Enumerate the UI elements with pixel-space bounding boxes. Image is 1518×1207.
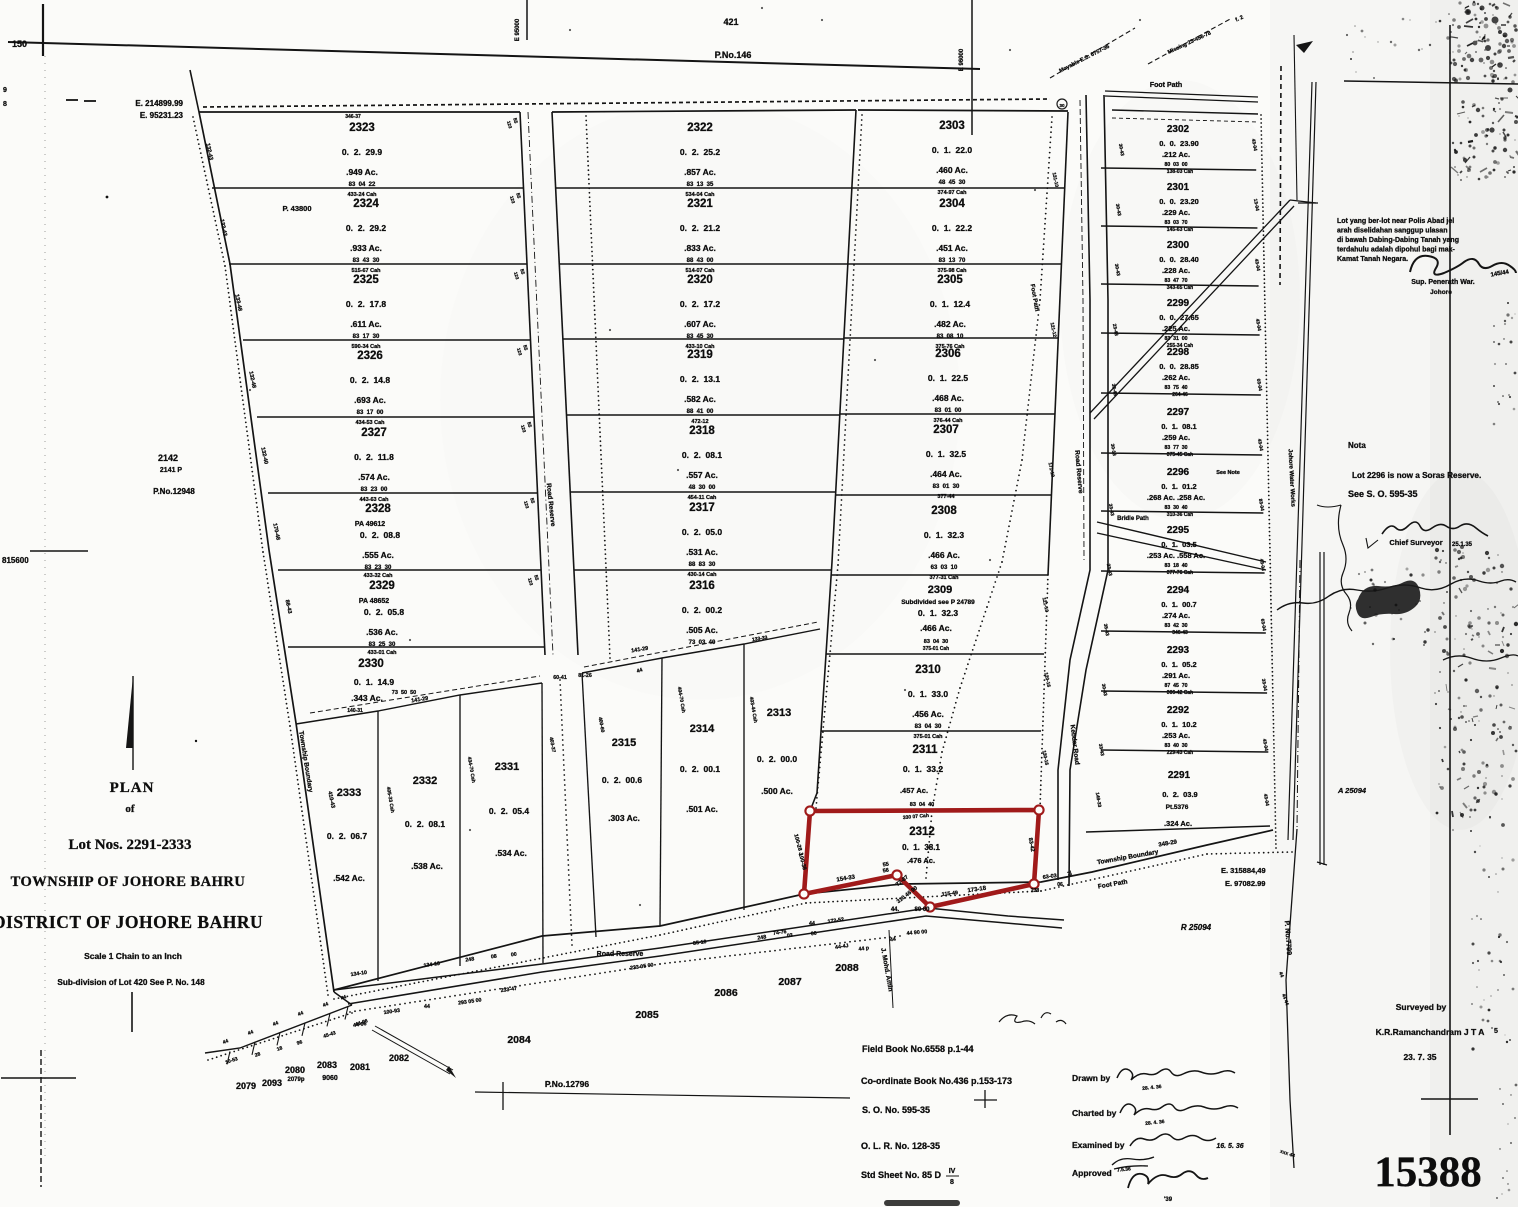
- svg-text:2093: 2093: [262, 1078, 282, 1088]
- svg-text:44: 44: [890, 937, 897, 944]
- svg-text:2296: 2296: [1167, 467, 1190, 478]
- svg-text:.611 Ac.: .611 Ac.: [350, 319, 381, 329]
- svg-text:0. 2. 08.1: 0. 2. 08.1: [405, 819, 445, 829]
- svg-text:2085: 2085: [635, 1009, 659, 1021]
- svg-text:.457 Ac.: .457 Ac.: [900, 786, 928, 795]
- svg-text:0. 0. 28.40: 0. 0. 28.40: [1159, 255, 1199, 264]
- svg-text:87 45 70: 87 45 70: [1164, 683, 1187, 689]
- svg-text:0. 1. 22.2: 0. 1. 22.2: [932, 223, 972, 233]
- svg-text:83 04 30: 83 04 30: [915, 724, 942, 730]
- svg-text:.557 Ac.: .557 Ac.: [686, 470, 718, 480]
- svg-text:83 13 70: 83 13 70: [939, 258, 966, 264]
- svg-text:2303: 2303: [939, 120, 965, 132]
- svg-text:83 04 30: 83 04 30: [924, 639, 948, 645]
- svg-text:0. 1. 22.5: 0. 1. 22.5: [928, 373, 968, 383]
- svg-text:83 04 40: 83 04 40: [910, 802, 934, 808]
- svg-text:P. 43800: P. 43800: [282, 204, 311, 213]
- svg-text:2318: 2318: [689, 425, 715, 437]
- svg-text:48 45 30: 48 45 30: [939, 180, 966, 186]
- svg-text:Pt.5376: Pt.5376: [1166, 804, 1189, 811]
- svg-text:83 42 30: 83 42 30: [1164, 623, 1187, 629]
- svg-text:44.: 44.: [891, 907, 900, 913]
- svg-text:145-63 Cah: 145-63 Cah: [1167, 227, 1193, 233]
- svg-text:P.No.146: P.No.146: [715, 50, 752, 60]
- svg-text:83 45 30: 83 45 30: [687, 334, 714, 340]
- svg-text:2309: 2309: [928, 584, 952, 596]
- svg-text:03: 03: [787, 933, 794, 940]
- svg-text:Examined by: Examined by: [1072, 1140, 1125, 1150]
- svg-text:2141 P: 2141 P: [160, 467, 183, 474]
- svg-text:0. 1. 12.4: 0. 1. 12.4: [930, 299, 970, 309]
- svg-text:2302: 2302: [1167, 124, 1190, 135]
- svg-text:.505 Ac.: .505 Ac.: [686, 625, 718, 635]
- svg-text:.291 Ac.: .291 Ac.: [1162, 671, 1190, 680]
- svg-text:229-43 Cah: 229-43 Cah: [1167, 750, 1193, 756]
- svg-text:2088: 2088: [835, 962, 859, 974]
- svg-text:.303 Ac.: .303 Ac.: [608, 813, 640, 823]
- svg-text:48 30 00: 48 30 00: [689, 485, 716, 491]
- svg-text:E 96000: E 96000: [959, 48, 965, 71]
- svg-text:2321: 2321: [687, 198, 713, 210]
- svg-text:83 23 30: 83 23 30: [365, 565, 392, 571]
- svg-text:83 43 30: 83 43 30: [353, 258, 380, 264]
- svg-text:Scale 1 Chain to an Inch: Scale 1 Chain to an Inch: [84, 951, 182, 961]
- svg-text:81-26: 81-26: [578, 673, 592, 679]
- svg-text:83 40 30: 83 40 30: [1164, 743, 1187, 749]
- svg-text:0. 1. 32.3: 0. 1. 32.3: [918, 608, 958, 618]
- svg-text:88 41 00: 88 41 00: [687, 409, 714, 415]
- svg-text:80 03 00: 80 03 00: [1164, 162, 1187, 168]
- svg-text:0. 0. 28.85: 0. 0. 28.85: [1159, 362, 1199, 371]
- svg-text:0. 2. 25.2: 0. 2. 25.2: [680, 147, 720, 157]
- svg-text:2304: 2304: [939, 198, 965, 210]
- svg-text:454-11 Cah: 454-11 Cah: [688, 495, 717, 501]
- svg-text:di bawah Dabing-Dabing Tanah y: di bawah Dabing-Dabing Tanah yang: [1337, 237, 1459, 244]
- svg-text:2087: 2087: [778, 976, 802, 988]
- svg-text:2331: 2331: [495, 761, 519, 773]
- svg-text:2305: 2305: [937, 274, 963, 286]
- svg-text:Foot Path: Foot Path: [1150, 82, 1182, 89]
- svg-text:2320: 2320: [687, 274, 713, 286]
- svg-text:9: 9: [3, 87, 7, 94]
- svg-text:.229 Ac.: .229 Ac.: [1162, 208, 1190, 217]
- svg-text:83 25 30: 83 25 30: [369, 642, 396, 648]
- svg-text:00: 00: [511, 952, 518, 959]
- svg-text:15388: 15388: [1374, 1149, 1482, 1196]
- svg-text:83 75 40: 83 75 40: [1164, 385, 1187, 391]
- svg-text:88 83 30: 88 83 30: [689, 562, 716, 568]
- svg-text:E 95000: E 95000: [515, 18, 521, 41]
- svg-text:248: 248: [465, 956, 475, 963]
- svg-text:63 03 10: 63 03 10: [931, 565, 958, 571]
- svg-text:2311: 2311: [913, 744, 939, 756]
- svg-text:.253 Ac. .558 Ac.: .253 Ac. .558 Ac.: [1147, 551, 1205, 560]
- svg-text:.274 Ac.: .274 Ac.: [1162, 611, 1190, 620]
- svg-text:310-36 Cah: 310-36 Cah: [1167, 512, 1193, 518]
- svg-text:2083: 2083: [317, 1060, 337, 1070]
- svg-text:Road Reserve: Road Reserve: [597, 951, 644, 958]
- svg-text:83 04 22: 83 04 22: [349, 182, 376, 188]
- svg-text:0. 2. 29.9: 0. 2. 29.9: [342, 147, 382, 157]
- svg-text:2325: 2325: [353, 274, 379, 286]
- svg-text:44: 44: [424, 1004, 430, 1010]
- svg-text:See Note: See Note: [1216, 470, 1240, 476]
- svg-text:83 18 40: 83 18 40: [1164, 563, 1187, 569]
- svg-text:PA 48652: PA 48652: [359, 598, 389, 605]
- svg-text:433-32 Cah: 433-32 Cah: [363, 573, 393, 579]
- svg-text:2308: 2308: [931, 505, 957, 517]
- svg-text:2291: 2291: [1168, 770, 1191, 781]
- svg-text:0. 2. 00.2: 0. 2. 00.2: [682, 605, 722, 615]
- svg-text:83 08 10: 83 08 10: [937, 334, 964, 340]
- svg-text:264-46: 264-46: [1172, 392, 1188, 398]
- svg-text:375-45 Cah: 375-45 Cah: [1167, 452, 1193, 458]
- svg-text:.582 Ac.: .582 Ac.: [684, 394, 716, 404]
- svg-text:248: 248: [757, 934, 767, 941]
- svg-text:375-01 Cah: 375-01 Cah: [913, 734, 943, 740]
- svg-text:0. 2. 11.8: 0. 2. 11.8: [354, 452, 394, 462]
- svg-text:Co-ordinate Book No.436 p.153-: Co-ordinate Book No.436 p.153-173: [861, 1076, 1012, 1086]
- svg-text:.259 Ac.: .259 Ac.: [1162, 433, 1190, 442]
- svg-text:0. 1. 38.1: 0. 1. 38.1: [902, 843, 940, 852]
- svg-text:.228 Ac.: .228 Ac.: [1162, 266, 1190, 275]
- svg-text:Subdivided see P 24789: Subdivided see P 24789: [901, 599, 975, 606]
- svg-text:0. 1. 33.0: 0. 1. 33.0: [908, 689, 948, 699]
- svg-text:83 17 30: 83 17 30: [353, 334, 380, 340]
- svg-text:Approved: Approved: [1072, 1168, 1112, 1178]
- svg-text:0. 1. 32.3: 0. 1. 32.3: [924, 530, 964, 540]
- svg-text:Sup. Penerath War.: Sup. Penerath War.: [1411, 279, 1475, 286]
- svg-text:2081: 2081: [350, 1062, 370, 1072]
- svg-text:of: of: [125, 803, 135, 815]
- svg-text:60-41: 60-41: [553, 675, 567, 681]
- svg-text:2142: 2142: [158, 453, 178, 463]
- svg-text:0. 2. 14.8: 0. 2. 14.8: [350, 375, 390, 385]
- svg-text:2079p: 2079p: [287, 1077, 304, 1083]
- svg-text:0. 2. 13.1: 0. 2. 13.1: [680, 374, 720, 384]
- svg-text:'39: '39: [1164, 1197, 1173, 1203]
- svg-text:.456 Ac.: .456 Ac.: [912, 709, 944, 719]
- svg-text:2298: 2298: [1167, 347, 1190, 358]
- svg-text:K.R.Ramanchandram J T A: K.R.Ramanchandram J T A: [1376, 1027, 1485, 1037]
- svg-text:83 03 70: 83 03 70: [1164, 220, 1187, 226]
- svg-text:83 47 70: 83 47 70: [1164, 278, 1187, 284]
- svg-text:S. O. No. 595-35: S. O. No. 595-35: [862, 1105, 930, 1115]
- svg-text:P.No.12948: P.No.12948: [153, 487, 195, 496]
- svg-text:9060: 9060: [322, 1075, 338, 1082]
- svg-text:88 43 00: 88 43 00: [687, 258, 714, 264]
- svg-text:140-31: 140-31: [347, 708, 363, 714]
- svg-text:2295: 2295: [1167, 525, 1190, 536]
- svg-text:Nota: Nota: [1348, 441, 1366, 450]
- svg-text:83 13 35: 83 13 35: [687, 182, 714, 188]
- svg-text:30: 30: [1059, 103, 1065, 108]
- svg-text:Field Book No.6558 p.1-44: Field Book No.6558 p.1-44: [862, 1044, 974, 1054]
- svg-text:434-53 Cah: 434-53 Cah: [355, 420, 385, 426]
- svg-text:2301: 2301: [1167, 182, 1190, 193]
- svg-text:.693 Ac.: .693 Ac.: [354, 395, 386, 405]
- svg-text:Kamat Tanah Negara.: Kamat Tanah Negara.: [1337, 256, 1408, 263]
- svg-text:O. L. R. No. 128-35: O. L. R. No. 128-35: [861, 1141, 940, 1151]
- svg-text:56: 56: [882, 868, 889, 875]
- svg-text:2082: 2082: [389, 1053, 409, 1063]
- svg-text:.531 Ac.: .531 Ac.: [686, 547, 718, 557]
- svg-text:8: 8: [3, 101, 7, 108]
- svg-text:377-44: 377-44: [937, 494, 955, 500]
- svg-text:.555 Ac.: .555 Ac.: [362, 550, 394, 560]
- svg-text:2294: 2294: [1167, 585, 1190, 596]
- svg-text:Lot yang ber-lot near Polis Ab: Lot yang ber-lot near Polis Abad jel: [1337, 218, 1454, 225]
- svg-text:R 25094: R 25094: [1181, 923, 1212, 932]
- svg-text:.262 Ac.: .262 Ac.: [1162, 373, 1190, 382]
- svg-text:150: 150: [12, 39, 27, 49]
- svg-text:Chief Surveyor: Chief Surveyor: [1389, 538, 1442, 547]
- svg-text:430-14 Cah: 430-14 Cah: [687, 572, 717, 578]
- svg-text:2292: 2292: [1167, 705, 1190, 716]
- svg-text:377-76 Cah: 377-76 Cah: [1167, 570, 1193, 576]
- svg-text:2300: 2300: [1167, 240, 1190, 251]
- svg-text:Drawn by: Drawn by: [1072, 1073, 1111, 1083]
- svg-text:PA 49612: PA 49612: [355, 521, 385, 528]
- svg-text:0. 1. 03.5: 0. 1. 03.5: [1161, 540, 1196, 549]
- svg-text:0. 2. 08.1: 0. 2. 08.1: [682, 450, 722, 460]
- svg-text:Std Sheet No. 85 D: Std Sheet No. 85 D: [861, 1170, 942, 1180]
- svg-text:2323: 2323: [349, 122, 375, 134]
- svg-text:2329: 2329: [369, 580, 395, 592]
- svg-text:0. 0. 27.65: 0. 0. 27.65: [1159, 313, 1199, 322]
- svg-text:2319: 2319: [687, 349, 713, 361]
- svg-text:.542 Ac.: .542 Ac.: [333, 873, 365, 883]
- svg-text:See S. O. 595-35: See S. O. 595-35: [1348, 489, 1418, 499]
- svg-text:0. 2. 03.9: 0. 2. 03.9: [1162, 790, 1197, 799]
- svg-text:E. 315884,49: E. 315884,49: [1221, 866, 1266, 875]
- svg-text:238: 238: [1031, 888, 1040, 894]
- svg-text:Lot Nos. 2291-2333: Lot Nos. 2291-2333: [69, 837, 192, 853]
- svg-text:2328: 2328: [365, 503, 391, 515]
- svg-text:Johore: Johore: [1430, 289, 1452, 296]
- svg-text:PLAN: PLAN: [110, 780, 155, 796]
- svg-text:2293: 2293: [1167, 645, 1190, 656]
- svg-text:.466 Ac.: .466 Ac.: [928, 550, 960, 560]
- svg-text:A 25094: A 25094: [1337, 786, 1367, 795]
- svg-text:8: 8: [950, 1179, 954, 1186]
- svg-text:.268 Ac. .258 Ac.: .268 Ac. .258 Ac.: [1147, 493, 1205, 502]
- svg-text:83 17 00: 83 17 00: [357, 410, 384, 416]
- svg-text:346-43: 346-43: [1172, 630, 1188, 636]
- svg-text:346-37: 346-37: [345, 114, 361, 120]
- svg-text:2299: 2299: [1167, 298, 1190, 309]
- svg-text:2322: 2322: [687, 122, 713, 134]
- svg-text:E. 95231.23: E. 95231.23: [140, 111, 184, 120]
- svg-text:.607 Ac.: .607 Ac.: [684, 319, 716, 329]
- svg-text:0. 2. 05.0: 0. 2. 05.0: [682, 527, 722, 537]
- svg-text:83 01 30: 83 01 30: [933, 484, 960, 490]
- svg-text:arah diselidahan sanggup ulasa: arah diselidahan sanggup ulasan: [1337, 228, 1447, 235]
- svg-text:E. 214899.99: E. 214899.99: [135, 99, 183, 108]
- svg-text:08: 08: [491, 954, 498, 961]
- svg-text:2324: 2324: [353, 198, 379, 210]
- svg-text:.536 Ac.: .536 Ac.: [366, 627, 398, 637]
- svg-text:.574 Ac.: .574 Ac.: [358, 472, 390, 482]
- svg-text:Charted by: Charted by: [1072, 1108, 1117, 1118]
- svg-text:23. 7. 35: 23. 7. 35: [1403, 1052, 1436, 1062]
- svg-text:2080: 2080: [285, 1065, 305, 1075]
- svg-text:421: 421: [723, 17, 738, 27]
- svg-text:73 03 40: 73 03 40: [689, 640, 716, 646]
- svg-text:5: 5: [1494, 1028, 1498, 1035]
- svg-text:Sub-division of Lot 420 See P.: Sub-division of Lot 420 See P. No. 148: [57, 978, 205, 987]
- svg-text:.476 Ac.: .476 Ac.: [907, 856, 935, 865]
- svg-text:2317: 2317: [689, 502, 715, 514]
- svg-text:377-31 Cah: 377-31 Cah: [929, 575, 959, 581]
- svg-text:.225 Ac.: .225 Ac.: [1162, 324, 1190, 333]
- svg-text:0. 2. 21.2: 0. 2. 21.2: [680, 223, 720, 233]
- svg-text:0. 0. 23.90: 0. 0. 23.90: [1159, 139, 1199, 148]
- svg-text:2310: 2310: [915, 664, 941, 676]
- svg-text:0. 1. 01.2: 0. 1. 01.2: [1161, 482, 1196, 491]
- svg-text:0. 2. 00.1: 0. 2. 00.1: [680, 764, 720, 774]
- svg-text:815600: 815600: [2, 556, 29, 565]
- svg-text:.857 Ac.: .857 Ac.: [684, 167, 716, 177]
- svg-text:0. 1. 10.2: 0. 1. 10.2: [1161, 720, 1196, 729]
- svg-text:.464 Ac.: .464 Ac.: [930, 469, 962, 479]
- svg-text:0. 1. 22.0: 0. 1. 22.0: [932, 145, 972, 155]
- svg-text:.253 Ac.: .253 Ac.: [1162, 731, 1190, 740]
- svg-text:Surveyed by: Surveyed by: [1396, 1002, 1447, 1012]
- svg-text:306-42 Cah: 306-42 Cah: [1167, 690, 1193, 696]
- svg-text:.482 Ac.: .482 Ac.: [934, 319, 966, 329]
- svg-text:0. 1. 33.2: 0. 1. 33.2: [903, 764, 943, 774]
- svg-text:375-01 Cah: 375-01 Cah: [923, 646, 949, 652]
- svg-text:0. 1. 05.2: 0. 1. 05.2: [1161, 660, 1196, 669]
- svg-text:0. 1. 32.5: 0. 1. 32.5: [926, 449, 966, 459]
- svg-text:2316: 2316: [689, 580, 715, 592]
- svg-text:80 00: 80 00: [914, 907, 930, 913]
- svg-text:0. 2. 17.8: 0. 2. 17.8: [346, 299, 386, 309]
- svg-text:2297: 2297: [1167, 407, 1190, 418]
- svg-text:.534 Ac.: .534 Ac.: [495, 848, 527, 858]
- svg-text:2312: 2312: [909, 826, 935, 838]
- svg-text:0. 2. 08.8: 0. 2. 08.8: [360, 530, 400, 540]
- svg-text:138-03 Cah: 138-03 Cah: [1167, 169, 1193, 175]
- svg-text:0. 0. 23.20: 0. 0. 23.20: [1159, 197, 1199, 206]
- svg-text:.538 Ac.: .538 Ac.: [411, 861, 443, 871]
- svg-text:.324 Ac.: .324 Ac.: [1164, 819, 1192, 828]
- svg-text:.466 Ac.: .466 Ac.: [920, 623, 952, 633]
- svg-text:06: 06: [1057, 882, 1063, 888]
- svg-text:DISTRICT OF JOHORE BAHRU: DISTRICT OF JOHORE BAHRU: [0, 912, 263, 932]
- svg-text:2307: 2307: [933, 424, 959, 436]
- svg-text:.212 Ac.: .212 Ac.: [1162, 150, 1190, 159]
- svg-text:2332: 2332: [413, 775, 437, 787]
- svg-text:0. 2. 05.4: 0. 2. 05.4: [489, 806, 529, 816]
- svg-text:Bridle Path: Bridle Path: [1117, 516, 1149, 522]
- svg-text:P.No.12796: P.No.12796: [545, 1079, 590, 1089]
- svg-text:16. 5. 36: 16. 5. 36: [1216, 1143, 1243, 1150]
- svg-text:0. 2. 17.2: 0. 2. 17.2: [680, 299, 720, 309]
- svg-text:.460 Ac.: .460 Ac.: [936, 165, 968, 175]
- svg-text:0. 2. 00.0: 0. 2. 00.0: [757, 754, 797, 764]
- svg-text:83 23 00: 83 23 00: [361, 487, 388, 493]
- svg-text:374-97 Cah: 374-97 Cah: [937, 190, 967, 196]
- svg-text:.833 Ac.: .833 Ac.: [684, 243, 716, 253]
- svg-text:.343 Ac.: .343 Ac.: [351, 693, 383, 703]
- svg-text:2313: 2313: [767, 707, 791, 719]
- svg-text:2079: 2079: [236, 1081, 256, 1091]
- svg-text:2314: 2314: [690, 723, 715, 735]
- svg-text:83 30 40: 83 30 40: [1164, 505, 1187, 511]
- svg-text:44: 44: [809, 921, 815, 927]
- svg-text:terdahulu adalah dipohul bagi: terdahulu adalah dipohul bagi mak-: [1337, 247, 1456, 254]
- svg-text:Lot 2296 is now a Soras Reserv: Lot 2296 is now a Soras Reserve.: [1352, 471, 1481, 480]
- svg-text:.451 Ac.: .451 Ac.: [936, 243, 968, 253]
- svg-text:.500 Ac.: .500 Ac.: [761, 786, 793, 796]
- svg-text:00: 00: [811, 931, 818, 938]
- svg-text:2084: 2084: [507, 1034, 531, 1046]
- svg-text:2326: 2326: [357, 350, 383, 362]
- svg-text:.501 Ac.: .501 Ac.: [686, 804, 718, 814]
- svg-text:0. 2. 29.2: 0. 2. 29.2: [346, 223, 386, 233]
- svg-text:.949 Ac.: .949 Ac.: [346, 167, 378, 177]
- svg-text:343-65 Cah: 343-65 Cah: [1167, 285, 1193, 291]
- svg-text:.468 Ac.: .468 Ac.: [932, 393, 964, 403]
- svg-text:2330: 2330: [358, 658, 384, 670]
- svg-text:E. 97082.99: E. 97082.99: [1225, 879, 1265, 888]
- svg-text:2327: 2327: [361, 427, 387, 439]
- svg-text:0. 1. 00.7: 0. 1. 00.7: [1161, 600, 1196, 609]
- svg-text:2086: 2086: [714, 987, 738, 999]
- svg-text:433-01 Cah: 433-01 Cah: [367, 650, 397, 656]
- svg-text:83 01 00: 83 01 00: [935, 408, 962, 414]
- svg-text:TOWNSHIP OF JOHORE BAHRU: TOWNSHIP OF JOHORE BAHRU: [11, 874, 246, 890]
- svg-text:.933 Ac.: .933 Ac.: [350, 243, 382, 253]
- svg-text:83 31 00: 83 31 00: [1164, 336, 1187, 342]
- svg-text:IV: IV: [949, 1168, 956, 1175]
- svg-text:0. 1. 14.9: 0. 1. 14.9: [354, 677, 394, 687]
- svg-text:2333: 2333: [337, 787, 361, 799]
- svg-text:0. 1. 08.1: 0. 1. 08.1: [1161, 422, 1196, 431]
- svg-text:2306: 2306: [935, 348, 961, 360]
- svg-text:73 50 50: 73 50 50: [392, 690, 416, 696]
- svg-text:83 77 30: 83 77 30: [1164, 445, 1187, 451]
- svg-text:0. 2. 06.7: 0. 2. 06.7: [327, 831, 367, 841]
- svg-text:2315: 2315: [612, 737, 636, 749]
- svg-text:0. 2. 05.8: 0. 2. 05.8: [364, 607, 404, 617]
- svg-text:0. 2. 00.6: 0. 2. 00.6: [602, 775, 642, 785]
